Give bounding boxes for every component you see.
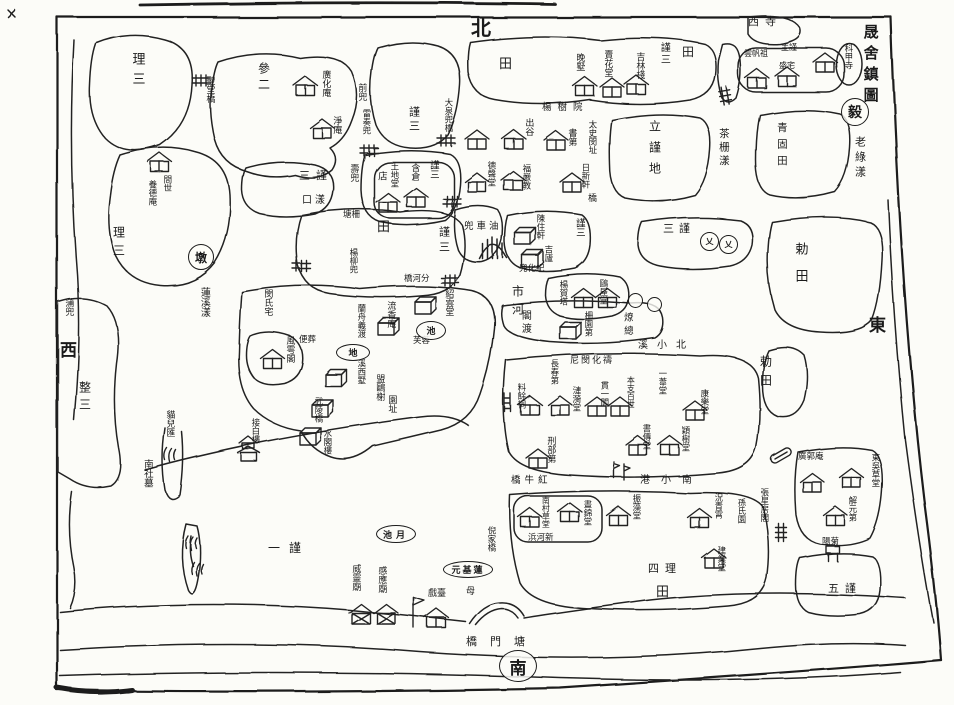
place-label: 浜河新 (528, 534, 554, 543)
compass-east: 東 (869, 318, 886, 336)
place-label: 尼閔化禱 (570, 357, 614, 366)
boat-icon (770, 447, 793, 465)
place-label: 戲臺 (428, 590, 446, 599)
place-label: 一葦堂 (657, 369, 666, 395)
seal-mark: 毅 (841, 98, 869, 126)
storehouse-icon (300, 428, 321, 445)
place-label: 況青霄 (713, 493, 722, 519)
place-label: 科甲寺 (843, 44, 852, 70)
place-label: 南村草堂 (541, 496, 549, 528)
bridge-label: 橋門塘 (466, 636, 538, 647)
place-label: 陽菊 (822, 538, 839, 547)
place-label: 漣漪堂 (571, 386, 580, 412)
place-label: 吉林棧 (634, 52, 643, 79)
house-icon (571, 288, 595, 307)
place-label: 謹三 (658, 42, 668, 66)
field-label: 田 (682, 46, 694, 58)
place-label: 謹三 (574, 218, 584, 237)
place-label: 楊賀塔 (558, 280, 567, 306)
circle-marker: 乂 (700, 232, 719, 251)
bridge-icon (437, 135, 455, 146)
house-icon (148, 153, 172, 172)
place-label: 書第 (566, 128, 575, 146)
place-label: 前兜 (356, 83, 365, 101)
place-label: 廣郭庵 (798, 453, 824, 462)
water-label: 蓮溪漾 (198, 287, 208, 317)
place-label: 雲帆祖 (744, 50, 768, 58)
bridge-label: 武陵橋 (313, 397, 322, 423)
place-label: 本支百世 (626, 376, 634, 408)
house-icon (688, 509, 712, 528)
place-label: 料餘祠 (516, 383, 525, 409)
oval-label: 池 (416, 321, 446, 340)
place-label: 威靈廟 (350, 564, 359, 591)
place-label: 水閣樓 (322, 429, 331, 455)
place-label: 謹三 (438, 226, 449, 256)
field-label: 田 (377, 221, 390, 235)
circle-marker: 墩 (188, 244, 214, 270)
house-icon (800, 473, 824, 492)
place-label: 陳住軒 (535, 214, 544, 240)
place-label: 三謹 (299, 170, 333, 181)
place-label: 主謹 (781, 44, 797, 52)
place-label: 間世 (162, 175, 171, 192)
place-label: 紹雲堂 (443, 289, 452, 316)
place-label: 含倉 (409, 163, 418, 181)
bridge-label: 橋河分 (404, 275, 430, 284)
field-label: 田 (656, 586, 669, 600)
place-label: 店 (376, 171, 386, 181)
place-label: 四理 (648, 563, 682, 574)
compass-south: 南 (499, 650, 537, 682)
place-label: 兜車油 (464, 222, 502, 232)
place-label: 整三 (78, 381, 90, 415)
place-label: 流香庵 (385, 301, 394, 328)
place-label: 晚墅 (574, 53, 583, 71)
place-label: 蒲兜 (63, 298, 72, 316)
place-label: 便葬 (299, 336, 316, 345)
bridge-icon (360, 145, 378, 156)
house-icon (606, 506, 630, 525)
house-icon (376, 193, 400, 212)
place-label: 西寺 (748, 16, 782, 27)
water-label: 口漾 (302, 196, 328, 206)
place-label: 土地堂 (389, 162, 398, 188)
place-label: 參二 (257, 62, 269, 94)
place-label: 出谷 (523, 118, 532, 136)
house-icon (558, 503, 582, 522)
place-label: 雷奏兜 (361, 109, 370, 135)
place-label: 廣化庵 (320, 70, 329, 97)
place-label: 康樂堂 (699, 389, 708, 415)
marsh-icon (191, 562, 203, 576)
house-icon (425, 609, 449, 628)
place-label: 鷗屋堂 (598, 279, 607, 305)
place-label: 楊柳兜 (348, 248, 357, 274)
ladder-icon (505, 394, 511, 412)
bridge-label: 橋牛紅 (511, 476, 552, 486)
water-label: 港小南 (640, 476, 703, 486)
place-label: 長春第 (549, 359, 558, 385)
house-icon (544, 131, 568, 150)
map-title: 晟舍鎮圖 (862, 24, 878, 108)
marsh-icon (164, 448, 176, 462)
place-label: 聖堂橋 (204, 76, 213, 103)
house-icon (293, 76, 317, 95)
place-label: 蘭舟義渡 (356, 304, 365, 338)
pier-icon (826, 546, 839, 561)
house-icon (518, 508, 542, 527)
place-label: 閔氏宅 (262, 289, 271, 316)
place-label: 貫一閣 (599, 381, 608, 407)
place-label: 盛宅 (779, 62, 795, 70)
place-label: 孫氏園 (736, 498, 745, 524)
place-label: 振藻堂 (631, 494, 640, 520)
temple-icon (349, 604, 373, 624)
field-label: 田 (499, 58, 512, 72)
map-canvas (0, 0, 954, 705)
bridge-icon (293, 261, 311, 272)
place-label: 張星房閣 (759, 488, 768, 522)
place-label: 吉廬 (543, 245, 552, 262)
storehouse-icon (560, 322, 581, 339)
storehouse-icon (515, 228, 536, 245)
house-icon (823, 506, 847, 525)
place-label: 晝錦堂 (582, 500, 591, 526)
place-label: 太史閔址 (587, 120, 596, 154)
bridge-label: 大泉兜橋 (443, 98, 452, 132)
place-label: 感應廟 (376, 566, 385, 593)
house-icon (840, 469, 864, 488)
place-label: 書傳堂 (641, 424, 650, 450)
place-label: 養德庵 (147, 180, 156, 206)
place-label: 理三 (112, 226, 124, 262)
place-label: 賣花堂 (602, 50, 611, 77)
place-label: 解元第 (847, 496, 856, 522)
water-label: 老綠漾 (854, 136, 865, 181)
bridge-label: 橋 (588, 195, 597, 204)
circle-marker: 乂 (719, 235, 738, 254)
oval-label: 元基蓮 (443, 561, 493, 578)
place-label: 燎總 (622, 312, 632, 339)
place-label: 謹三 (428, 160, 438, 179)
place-label: 勅田 (759, 355, 771, 393)
compass-north: 北 (471, 18, 491, 39)
place-label: 淨庵 (331, 116, 340, 134)
place-label: 南社墓 (142, 459, 152, 488)
place-label: 盟鷗榭 (374, 374, 383, 401)
place-label: 兜化紀 (519, 265, 545, 274)
place-label: 穎樹堂 (680, 426, 689, 452)
water-label: 茶栅漾 (718, 128, 729, 169)
house-icon (600, 78, 624, 97)
place-label: 母 (466, 588, 475, 597)
place-label: 青固田 (776, 122, 787, 172)
waterways (58, 16, 933, 680)
water-label: 溪小北 (638, 341, 695, 351)
place-label: 貓兒匯 (164, 410, 173, 437)
place-label: 建業堂 (716, 546, 725, 572)
oval-label: 地 (336, 344, 370, 361)
place-label: 一謹 (268, 542, 310, 554)
pole-icon (614, 462, 620, 478)
place-label: 園址 (386, 395, 395, 413)
storehouse-icon (325, 369, 346, 386)
map-page: 晟舍鎮圖老綠漾北東西理三參二理三間世養德庵聖堂橋蒲兜整三蓮溪漾廣化庵淨庵前兜雷奏… (0, 0, 954, 705)
place-label: 福嚴教 (521, 164, 530, 190)
house-icon (404, 188, 428, 207)
house-icon (658, 436, 682, 455)
place-label: 閣渡 (519, 310, 529, 336)
circle-marker (647, 297, 662, 312)
oval-label: 池月 (376, 525, 416, 543)
place-label: 壽兜 (348, 164, 357, 182)
house-icon (573, 77, 597, 96)
place-label: 勅田 (793, 242, 807, 296)
place-label: 溪西墅 (356, 359, 365, 385)
storehouse-icon (415, 297, 436, 314)
place-label: 柵園第 (583, 311, 592, 337)
house-icon (813, 53, 837, 72)
place-label: 立謹地 (648, 120, 660, 183)
bridge-icon (776, 524, 787, 542)
place-label: 理三 (130, 52, 144, 92)
place-label: 塘柵 (343, 211, 360, 220)
bridge-label: 倪家橋 (486, 526, 495, 552)
house-icon (465, 130, 489, 149)
place-label: 日新軒 (580, 163, 589, 189)
flag-icon (414, 598, 425, 628)
place-label: 刑部第 (545, 436, 554, 463)
place-label: 風雩閣 (284, 336, 293, 363)
compass-west: 西 (60, 343, 77, 361)
place-label: 東吳草堂 (870, 453, 879, 487)
place-label: 接白樓 (250, 418, 259, 444)
house-icon (548, 396, 572, 415)
circle-marker (628, 293, 643, 308)
place-label: 楊樹院 (542, 103, 589, 113)
place-label: 五謹 (828, 583, 862, 594)
house-icon (260, 349, 284, 368)
place-label: 德聲堂 (486, 161, 495, 187)
place-label: 三謹 (663, 223, 695, 234)
house-icon (745, 69, 769, 88)
place-label: 謹三 (408, 106, 419, 134)
